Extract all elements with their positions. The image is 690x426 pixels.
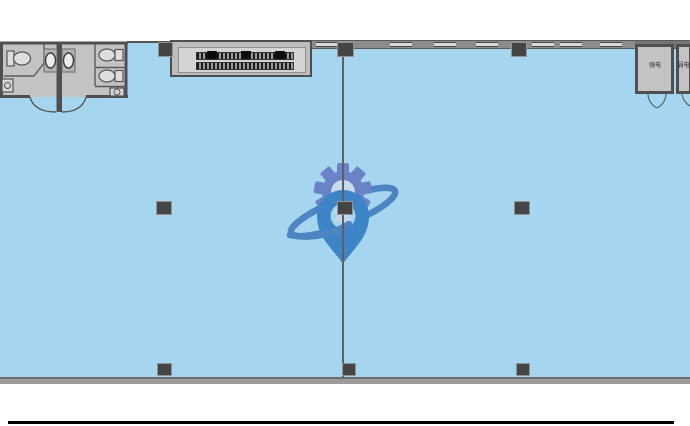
column-marker bbox=[514, 201, 530, 215]
window-segment bbox=[390, 42, 412, 47]
column-marker bbox=[337, 201, 353, 215]
escalator-drive bbox=[207, 51, 217, 59]
column-marker bbox=[156, 201, 172, 215]
floor-plan-canvas: 强电 弱电 bbox=[0, 0, 690, 426]
window-segment bbox=[532, 42, 554, 47]
column-marker bbox=[342, 363, 356, 376]
window-segment bbox=[600, 42, 622, 47]
room-label: 弱电 bbox=[677, 62, 690, 70]
room-label: 强电 bbox=[638, 62, 672, 70]
window-segment bbox=[560, 42, 582, 47]
toilet-tank bbox=[115, 50, 123, 61]
window-segment bbox=[316, 42, 338, 47]
sink bbox=[46, 53, 56, 68]
mop-sink bbox=[2, 79, 13, 92]
sheet-border-line bbox=[8, 421, 674, 424]
door-swing-arcs bbox=[640, 93, 690, 113]
window-segment bbox=[434, 42, 456, 47]
door-swing-arc bbox=[30, 97, 56, 112]
escalator-treads bbox=[196, 62, 294, 70]
restroom-block bbox=[0, 41, 128, 115]
toilet-tank bbox=[115, 71, 123, 82]
escalator-drive bbox=[241, 51, 251, 59]
column-marker bbox=[516, 363, 530, 376]
toilet bbox=[99, 70, 115, 82]
window-segment bbox=[476, 42, 498, 47]
column-marker bbox=[337, 42, 354, 57]
column-marker bbox=[158, 42, 173, 57]
top-facade-wall bbox=[312, 40, 635, 49]
bottom-facade-wall bbox=[0, 377, 690, 384]
door-swing-arc bbox=[62, 97, 86, 112]
column-marker bbox=[157, 363, 172, 376]
toilet bbox=[99, 49, 115, 61]
escalator-drive bbox=[275, 51, 285, 59]
sink bbox=[64, 53, 74, 68]
escalator-pit bbox=[178, 47, 306, 73]
grid-line bbox=[342, 57, 344, 377]
escalator-core bbox=[170, 40, 312, 77]
toilet bbox=[14, 52, 31, 65]
column-marker bbox=[511, 42, 527, 57]
